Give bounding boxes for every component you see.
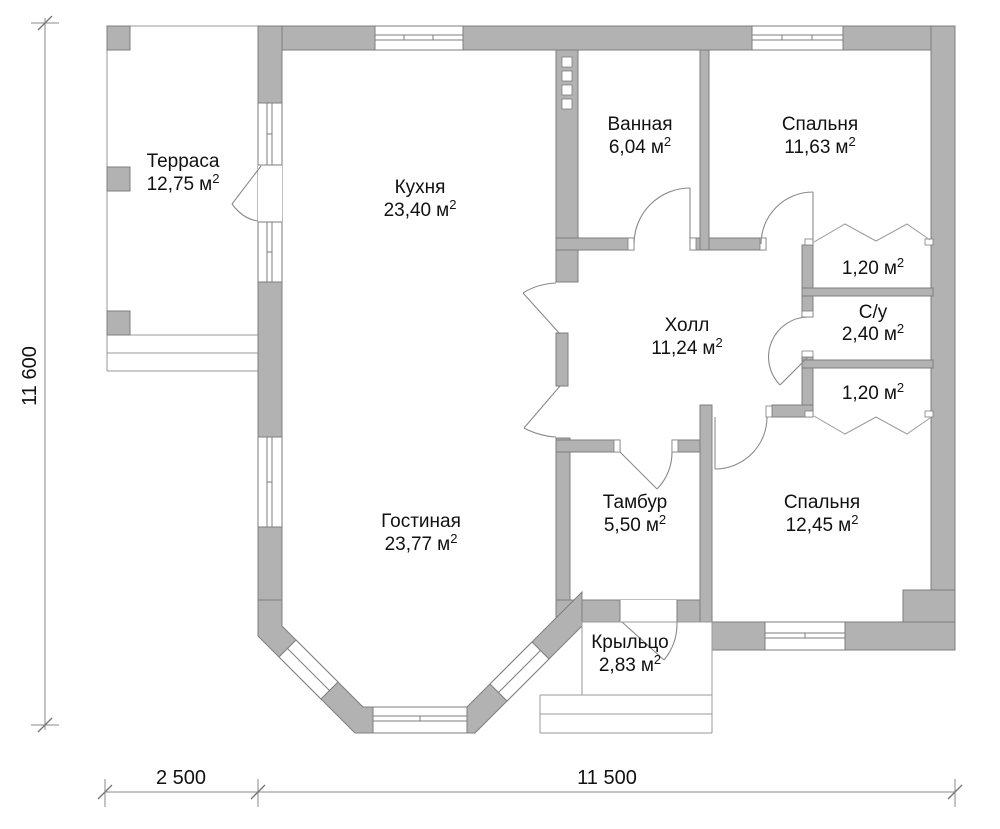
- wall-wc-closet2: [802, 360, 933, 368]
- porch-label: Крыльцо: [591, 632, 669, 653]
- bedroom2-bottom-window: [765, 622, 845, 650]
- hall-label: Холл: [665, 315, 710, 336]
- wall-openings: [258, 165, 677, 622]
- tambour-area: 5,50м2: [604, 512, 666, 536]
- bay-left-window: [279, 640, 338, 699]
- living-area: 23,77м2: [385, 531, 458, 555]
- terrace-door-opening: [258, 165, 282, 222]
- living-label: Гостиная: [381, 511, 461, 532]
- floor-plan-page: 11 600 2 500 11 500 Терраса 12,75м2 Кухн…: [0, 0, 1000, 829]
- terrace-post: [107, 26, 130, 50]
- wall-tambour-top-left: [556, 440, 620, 452]
- wardrobe-zigzag-bedroom1: [814, 224, 930, 242]
- terrace-kitchen-door: [232, 166, 261, 221]
- tambour-label: Тамбур: [603, 492, 668, 513]
- bedroom2-door: [715, 417, 767, 469]
- wardrobe-zigzag-bedroom2: [814, 416, 930, 434]
- living-hall-door: [524, 386, 560, 437]
- bathroom-area: 6,04м2: [609, 134, 671, 158]
- wall-tambour-bedroom2: [700, 405, 712, 622]
- wall-se-step: [903, 590, 955, 622]
- tambour-hall-door: [620, 452, 672, 489]
- bedroom2-area: 12,45м2: [786, 512, 859, 536]
- floor-plan-drawing: 11 600 2 500 11 500 Терраса 12,75м2 Кухн…: [0, 0, 1000, 829]
- wall-closet1-wc: [802, 288, 933, 296]
- wall-top: [258, 26, 955, 50]
- bedroom1-label: Спальня: [782, 114, 858, 135]
- porch-door-opening: [620, 600, 677, 622]
- kitchen-hall-door: [523, 283, 560, 334]
- wall-bathroom-bedroom1: [700, 50, 709, 250]
- bay-right-window: [490, 642, 549, 701]
- bay-bottom-window: [373, 707, 467, 733]
- bedroom1-door: [761, 192, 813, 244]
- terrace-structure: [107, 26, 258, 371]
- bedroom1-area: 11,63м2: [784, 134, 855, 158]
- terrace-area: 12,75м2: [147, 171, 220, 195]
- bathroom-door: [634, 188, 690, 244]
- wall-hall-stub: [556, 333, 568, 386]
- living-left-window: [258, 437, 282, 527]
- kitchen-top-window: [375, 26, 463, 50]
- wall-hall-right-upper: [802, 245, 813, 317]
- bathroom-label: Ванная: [607, 114, 672, 135]
- dimension-terrace-width: 2 500: [156, 767, 206, 789]
- kitchen-label: Кухня: [395, 177, 446, 198]
- wall-right: [931, 26, 955, 600]
- terrace-label: Терраса: [147, 151, 220, 172]
- bedroom2-label: Спальня: [784, 492, 860, 513]
- wall-bathroom-bottom: [556, 238, 634, 250]
- kitchen-left-window-1: [258, 103, 282, 165]
- porch-area: 2,83м2: [599, 652, 661, 676]
- dimension-height: 11 600: [19, 346, 41, 406]
- bedroom1-top-window: [752, 26, 843, 50]
- hall-area: 11,24м2: [651, 335, 722, 359]
- terrace-post: [107, 167, 130, 191]
- terrace-post: [107, 311, 130, 335]
- wall-tambour-left: [556, 438, 570, 600]
- dimension-house-width: 11 500: [577, 767, 637, 789]
- closet2-area: 1,20м2: [842, 380, 904, 404]
- wc-label: С/у: [859, 302, 888, 323]
- wc-area: 2,40м2: [842, 321, 904, 345]
- kitchen-area: 23,40м2: [384, 197, 457, 221]
- closet1-area: 1,20м2: [842, 255, 904, 279]
- kitchen-left-window-2: [258, 222, 282, 282]
